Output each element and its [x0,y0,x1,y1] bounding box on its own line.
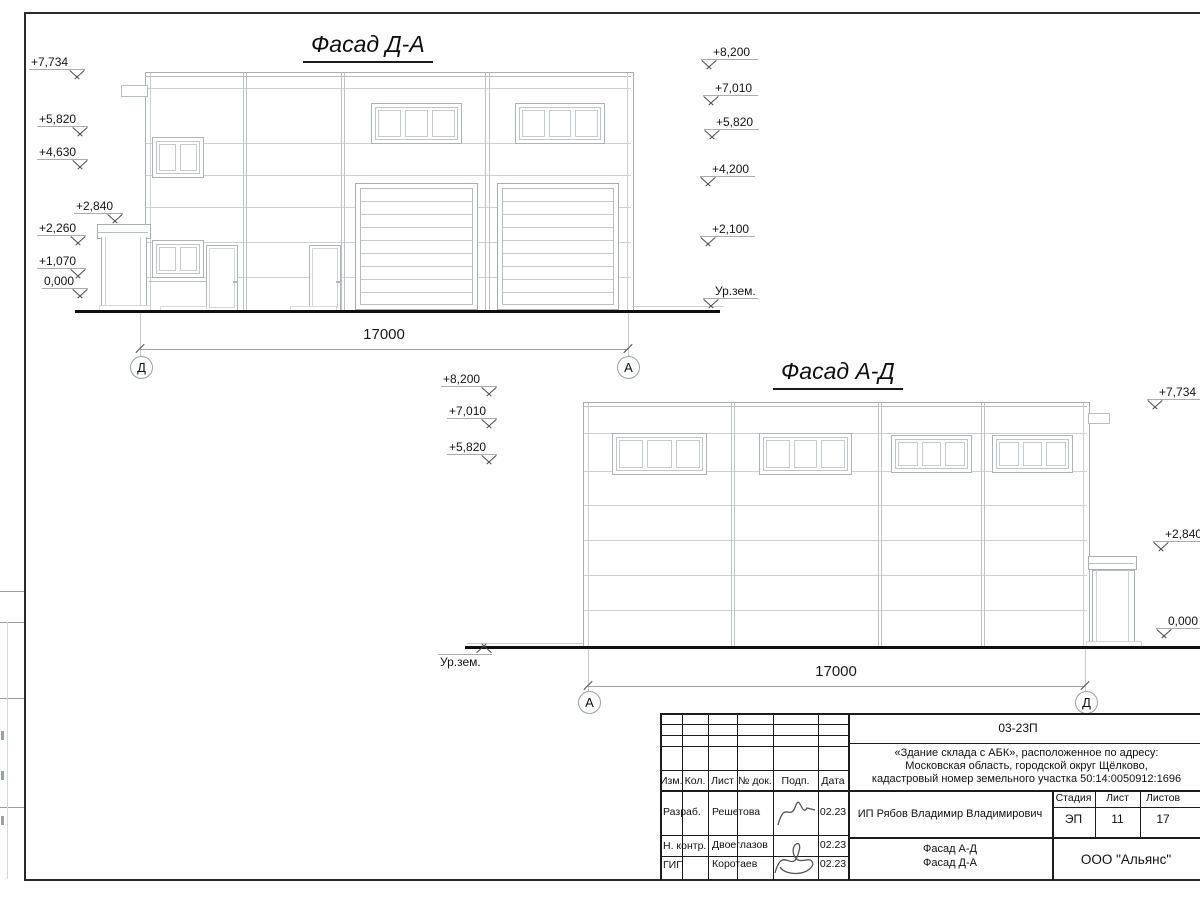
side-stamp-line [0,622,24,623]
facade-ad-title: Фасад А-Д [773,358,903,390]
facade-da-title: Фасад Д-А [303,31,433,63]
elevation-arrow-icon [483,455,495,466]
elevation-mark: +2,840 [1153,527,1200,542]
tb-header-doc: № док. [737,775,773,787]
elevation-arrow-icon [705,299,717,310]
column-line [489,73,490,310]
elevation-arrow-icon [483,419,495,430]
ribbon-window [515,103,605,144]
column-line [878,403,879,646]
elevation-arrow-icon [1158,629,1170,640]
axis-bubble: Д [1075,691,1098,714]
dimension-text: 17000 [786,663,886,680]
side-stamp-line [0,698,24,699]
signature [774,793,818,834]
tb-address-line3: кадастровый номер земельного участка 50:… [848,773,1200,785]
side-stamp-line [0,807,24,808]
elevation-arrow-icon [74,289,86,300]
ribbon-window [992,435,1073,473]
column-line [731,403,732,646]
tb-sheet-name-line1: Фасад А-Д [848,843,1052,855]
elevation-mark: 0,000 [1156,614,1200,629]
roof-vent [1088,413,1110,424]
elevation-arrow-icon [478,642,490,653]
tb-header-kol: Кол. [682,775,708,787]
porch-post-line [140,237,141,310]
tb-sheet-value: 11 [1095,812,1140,826]
column-line [485,73,486,310]
axis-bubble: А [617,356,640,379]
wall-inner-line [150,73,151,310]
tb-header-list: Лист [708,775,737,787]
elevation-arrow-icon [72,236,84,247]
elevation-mark: +5,820 [37,112,88,127]
elevation-mark: +2,260 [37,221,86,236]
window [152,240,204,278]
axis-bubble: А [578,691,601,714]
parapet-line [146,76,631,77]
porch-post-line [105,237,106,310]
tb-sheets-label: Листов [1140,792,1186,804]
tb-name: Коротаев [712,858,757,870]
elevation-arrow-icon [74,160,86,171]
elevation-arrow-icon [702,237,714,248]
tb-address-line1: «Здание склада с АБК», расположенное по … [848,747,1200,759]
column-line [246,73,247,310]
tb-name: Двоеглазов [712,839,768,851]
tb-role: Н. контр. [663,840,706,852]
signature [770,837,818,879]
column-line [243,73,244,310]
panel-joint [584,575,1087,576]
tb-role: Разраб. [663,806,701,818]
panel-joint [146,175,631,176]
side-stamp-text-fragment [1,816,4,825]
elevation-arrow-icon [483,387,495,398]
tb-header-izm: Изм. [660,775,682,787]
elevation-arrow-icon [74,127,86,138]
elevation-arrow-icon [703,60,715,71]
elevation-mark: +8,200 [441,372,497,387]
elevation-mark: +2,100 [700,222,755,237]
elevation-mark: +4,200 [700,162,755,177]
tb-sheets-value: 17 [1140,812,1186,826]
tb-client: ИП Рябов Владимир Владимирович [848,808,1052,820]
porch-canopy-line [1089,563,1134,564]
elevation-mark: +5,820 [704,115,759,130]
tb-header-podp: Подп. [773,775,818,787]
elevation-mark: Ур.зем. [703,284,758,299]
drawing-sheet: Фасад Д-А [0,0,1200,900]
column-line [984,403,985,646]
tb-role: ГИП [663,859,684,871]
tb-address-line2: Московская область, городской округ Щёлк… [848,760,1200,772]
elevation-mark: +7,734 [29,55,85,70]
ground-line [465,646,1200,649]
elevation-arrow-icon [706,130,718,141]
column-line [344,73,345,310]
entrance-door [309,245,341,311]
elevation-mark: +7,010 [703,81,758,96]
elevation-arrow-icon [1155,542,1167,553]
panel-joint [584,610,1087,611]
panel-joint [584,505,1087,506]
porch-post-line [1096,570,1097,644]
parapet-line [584,406,1087,407]
ground-line [75,310,720,313]
frame-top [24,12,1200,14]
column-line [341,73,342,310]
extension-line [1085,649,1086,693]
ribbon-window [891,435,972,473]
frame-left [24,12,26,881]
elevation-arrow-icon [109,214,121,225]
side-stamp-line [0,591,24,592]
elevation-mark: +4,630 [37,145,88,160]
tb-organization: ООО "Альянс" [1052,852,1200,867]
axis-bubble: Д [130,356,153,379]
side-stamp-text-fragment [1,731,4,740]
elevation-mark: 0,000 [42,274,88,289]
elevation-arrow-icon [702,177,714,188]
column-line [981,403,982,646]
roof-vent [121,85,148,97]
elevation-arrow-icon [71,70,83,81]
tb-name: Решетова [712,806,760,818]
ribbon-window [371,103,462,144]
ribbon-window [612,433,707,475]
ribbon-window [759,433,852,475]
panel-joint [584,540,1087,541]
tb-stage-label: Стадия [1052,792,1095,804]
elevation-mark: +1,070 [37,254,86,269]
dimension-line [140,349,628,350]
tb-stage-value: ЭП [1052,812,1095,826]
elevation-mark: +8,200 [701,45,758,60]
elevation-arrow-icon [705,96,717,107]
tb-sheet-name-line2: Фасад Д-А [848,857,1052,869]
dimension-text: 17000 [334,326,434,343]
column-line [734,403,735,646]
window [152,137,204,178]
elevation-mark: +7,734 [1147,385,1200,400]
extension-line [628,313,629,356]
side-stamp-text-fragment [1,771,4,780]
window-sill-line [149,281,207,282]
panel-joint [146,88,631,89]
garage-door [497,183,619,310]
tb-header-data: Дата [818,775,848,787]
frame-bottom [24,879,1200,881]
elevation-mark: +2,840 [74,199,123,214]
tb-date: 02.23 [818,806,848,818]
garage-door [355,183,478,310]
dimension-line [588,686,1085,687]
elevation-arrow-icon [1149,400,1161,411]
elevation-mark: +7,010 [447,404,497,419]
entrance-door [206,245,238,311]
wall-inner-line [627,73,628,310]
tb-date: 02.23 [818,858,848,870]
porch-canopy-line [98,232,148,233]
column-line [881,403,882,646]
porch-post-line [1128,570,1129,644]
elevation-mark: Ур.зем. [438,642,492,669]
side-stamp-line [7,622,8,879]
tb-date: 02.23 [818,839,848,851]
tb-project-code: 03-23П [848,721,1188,735]
tb-sheet-label: Лист [1095,792,1140,804]
elevation-mark: +5,820 [447,440,497,455]
